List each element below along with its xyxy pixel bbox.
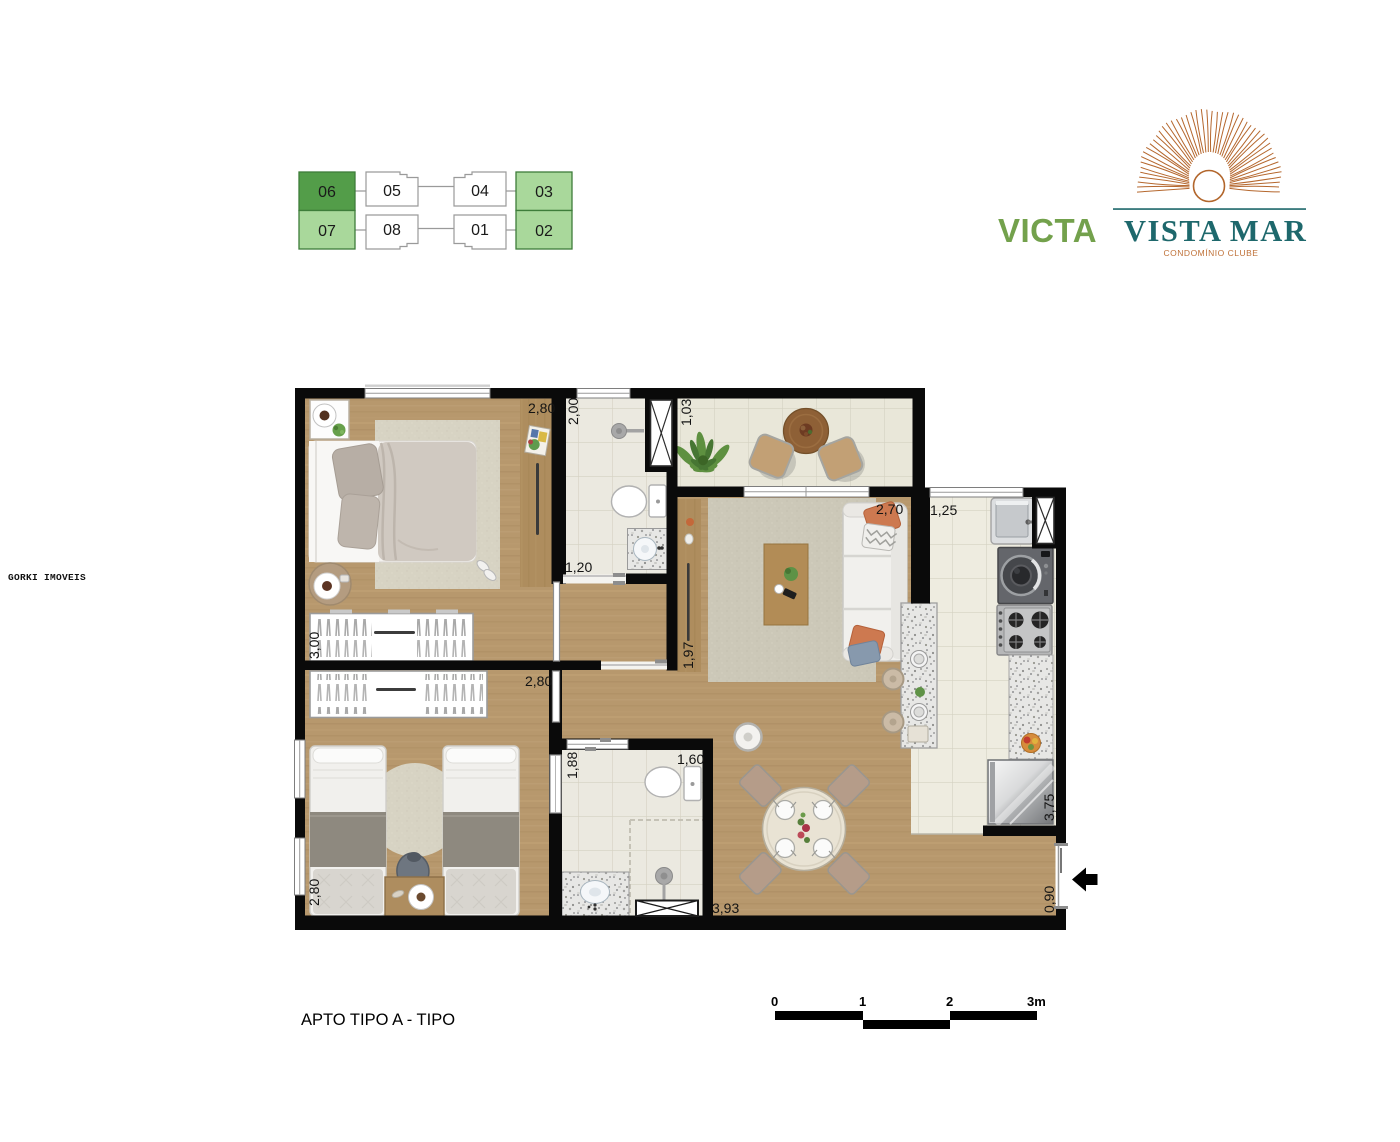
svg-text:06: 06 <box>318 184 336 201</box>
svg-text:2,80: 2,80 <box>306 879 322 906</box>
svg-text:0: 0 <box>771 994 778 1009</box>
svg-text:0,90: 0,90 <box>1041 886 1057 913</box>
svg-text:VICTA: VICTA <box>998 212 1097 249</box>
svg-text:01: 01 <box>471 222 489 239</box>
svg-text:07: 07 <box>318 223 336 240</box>
svg-text:2,00: 2,00 <box>565 398 581 425</box>
svg-text:02: 02 <box>535 223 553 240</box>
svg-text:1,88: 1,88 <box>564 752 580 779</box>
svg-text:1,97: 1,97 <box>680 642 696 669</box>
svg-text:CONDOMÍNIO CLUBE: CONDOMÍNIO CLUBE <box>1164 248 1259 258</box>
svg-text:1: 1 <box>859 994 866 1009</box>
svg-text:2,80: 2,80 <box>525 673 552 689</box>
svg-text:2,70: 2,70 <box>876 501 903 517</box>
svg-text:1,60: 1,60 <box>677 751 704 767</box>
svg-text:3m: 3m <box>1027 994 1046 1009</box>
svg-text:VISTA MAR: VISTA MAR <box>1124 214 1307 248</box>
svg-text:05: 05 <box>383 183 401 200</box>
svg-text:APTO TIPO A - TIPO: APTO TIPO A - TIPO <box>301 1011 455 1029</box>
svg-text:3,93: 3,93 <box>712 900 739 916</box>
svg-text:GORKI IMOVEIS: GORKI IMOVEIS <box>8 572 86 583</box>
svg-text:3,00: 3,00 <box>306 632 322 659</box>
svg-text:3,75: 3,75 <box>1041 794 1057 821</box>
svg-text:08: 08 <box>383 222 401 239</box>
svg-text:1,20: 1,20 <box>565 559 592 575</box>
svg-text:1,03: 1,03 <box>678 399 694 426</box>
svg-text:2: 2 <box>946 994 953 1009</box>
svg-text:2,80: 2,80 <box>528 400 555 416</box>
svg-text:03: 03 <box>535 184 553 201</box>
svg-text:04: 04 <box>471 183 489 200</box>
svg-text:1,25: 1,25 <box>930 502 957 518</box>
